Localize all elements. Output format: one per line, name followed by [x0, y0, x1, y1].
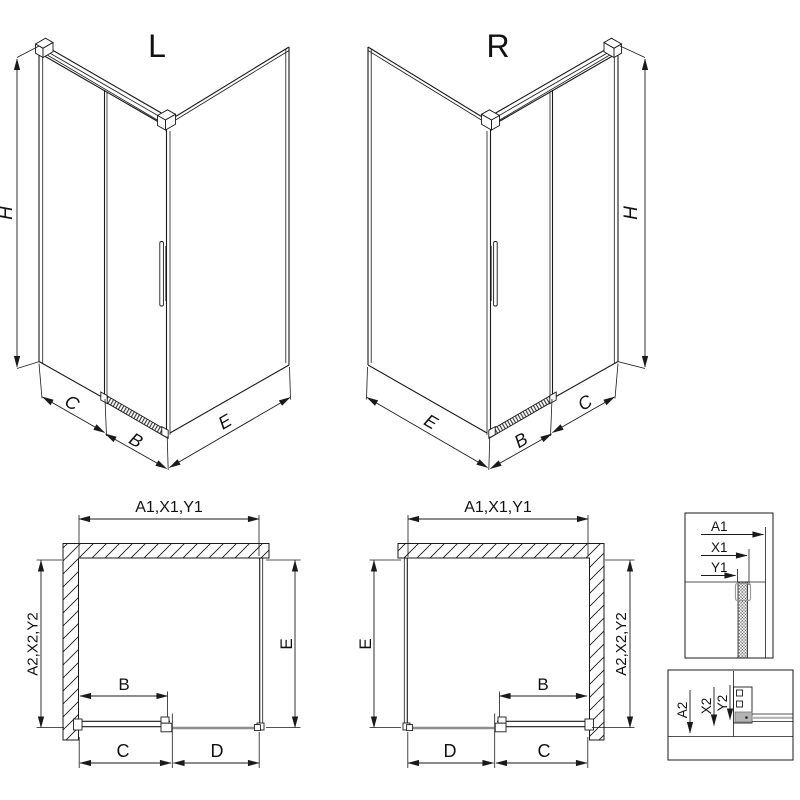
detail-width-y1-label: Y1 — [711, 560, 728, 575]
detail-width-glass-section — [738, 582, 748, 658]
detail-depth-x2-label: X2 — [699, 698, 714, 715]
iso-left-dim-height: H — [0, 46, 40, 369]
iso-right-view: R — [367, 28, 646, 470]
iso-right-dim-height: H — [618, 46, 646, 369]
iso-left-dim-h-label: H — [0, 206, 17, 220]
iso-right-dim-side: E — [367, 367, 488, 468]
iso-right-title: R — [486, 28, 509, 64]
plan-left-view: A1,X1,Y1 A2,X2,Y2 E B C D — [25, 499, 301, 768]
plan-right-view: A1,X1,Y1 E A2,X2,Y2 B D C — [356, 499, 635, 768]
plan-right-dim-b-label: B — [537, 675, 548, 694]
plan-right-inline-fixed-panel — [407, 725, 495, 731]
iso-left-dim-c-label: C — [61, 391, 83, 415]
iso-left-dim-e-label: E — [215, 410, 236, 434]
plan-left-dim-depth: A2,X2,Y2 — [25, 560, 65, 728]
shower-enclosure-technical-sheet: L — [0, 0, 800, 800]
iso-right-dim-h-label: H — [621, 206, 642, 220]
detail-depth-y2-label: Y2 — [715, 695, 730, 712]
detail-depth-guide-shoe — [735, 712, 752, 722]
plan-left-dim-b: B — [80, 675, 168, 717]
iso-left-door-handle — [160, 242, 166, 307]
plan-left-width-label: A1,X1,Y1 — [135, 499, 203, 516]
plan-left-side-glass — [257, 558, 264, 730]
detail-width-x1-label: X1 — [711, 540, 728, 555]
plan-left-depth-label: A2,X2,Y2 — [25, 612, 42, 675]
iso-left-dim-front: C B — [39, 364, 168, 471]
plan-right-width-label: A1,X1,Y1 — [464, 499, 532, 516]
plan-right-dim-e-label: E — [356, 638, 375, 649]
detail-depth-a2-label: A2 — [675, 702, 690, 719]
plan-right-dim-b: B — [500, 675, 588, 717]
iso-right-door-handle — [491, 242, 497, 307]
technical-drawing-canvas: L — [0, 0, 800, 800]
iso-right-dim-b-label: B — [511, 429, 531, 452]
plan-left-sliding-door — [74, 717, 172, 732]
detail-width-view: A1 X1 Y1 — [685, 513, 773, 658]
plan-left-dim-e: E — [266, 560, 301, 728]
plan-right-side-glass — [403, 558, 410, 730]
iso-right-glass-panels — [368, 46, 618, 435]
plan-right-sliding-door — [495, 717, 593, 732]
plan-left-dim-b-label: B — [118, 675, 129, 694]
plan-left-dim-e-label: E — [277, 638, 296, 649]
plan-left-inline-fixed-panel — [173, 725, 261, 731]
iso-left-dim-b-label: B — [126, 429, 146, 452]
plan-left-wall — [63, 544, 269, 741]
iso-left-title: L — [148, 28, 166, 64]
iso-right-dim-c-label: C — [574, 390, 596, 414]
iso-left-glass-panels — [39, 46, 289, 435]
detail-depth-view: A2 X2 Y2 — [668, 670, 793, 760]
iso-left-dim-side: E — [170, 367, 291, 468]
plan-left-dim-c-label: C — [117, 741, 130, 761]
iso-right-dim-front: B C — [489, 364, 618, 471]
detail-width-a1-label: A1 — [711, 519, 728, 534]
plan-right-dim-e: E — [356, 560, 401, 728]
iso-left-view: L — [0, 28, 291, 470]
plan-left-dim-d-label: D — [211, 741, 224, 761]
plan-right-dim-c-label: C — [538, 741, 551, 761]
plan-right-depth-label: A2,X2,Y2 — [613, 612, 630, 675]
plan-right-dim-d-label: D — [444, 741, 457, 761]
plan-right-wall — [398, 544, 604, 741]
